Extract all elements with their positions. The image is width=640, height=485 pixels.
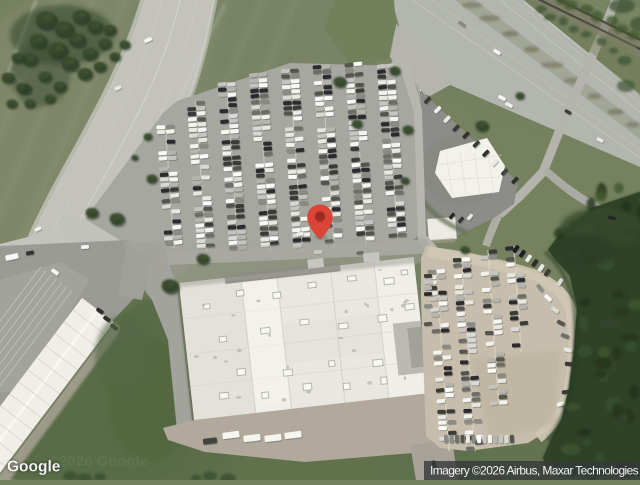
svg-text:©2026 Google: ©2026 Google <box>48 453 148 470</box>
svg-text:Imagery ©2026 Airbus, Maxar Te: Imagery ©2026 Airbus, Maxar Technologies <box>430 464 639 478</box>
svg-text:Google: Google <box>7 459 61 476</box>
